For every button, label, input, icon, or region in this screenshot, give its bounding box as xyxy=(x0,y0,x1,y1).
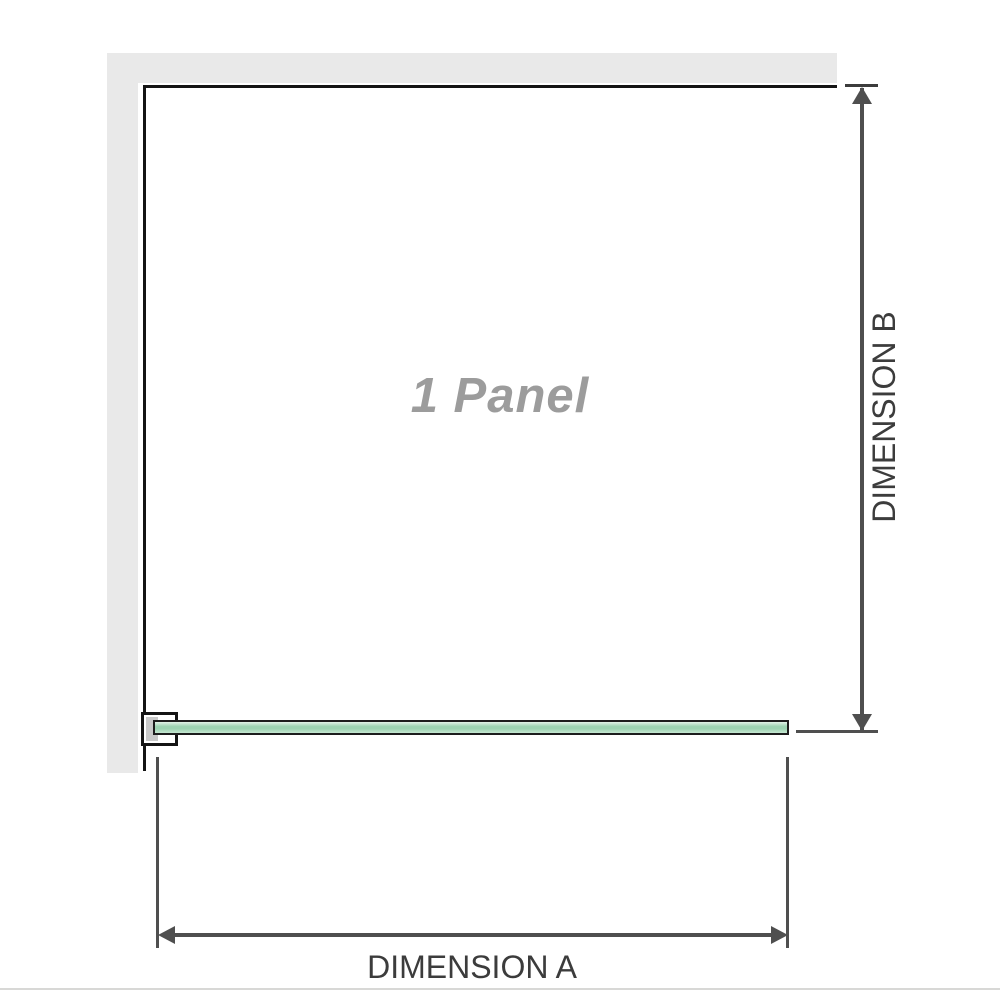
glass-panel xyxy=(153,720,789,735)
dimension-a-label: DIMENSION A xyxy=(172,948,772,986)
shower-panel-diagram: 1 Panel DIMENSION B DIMENSION A xyxy=(0,0,1000,1000)
arrow-left-icon xyxy=(158,926,175,944)
dimension-b-label: DIMENSION B xyxy=(866,217,902,617)
panel-count-label: 1 Panel xyxy=(300,365,700,427)
arrow-down-icon xyxy=(852,714,872,731)
arrow-up-icon xyxy=(852,87,872,104)
dimension-a-left-extension xyxy=(156,757,159,948)
wall-top xyxy=(107,53,837,83)
dimension-a-right-extension xyxy=(786,757,789,948)
dimension-a-line xyxy=(162,933,784,937)
dimension-b-line xyxy=(860,88,864,731)
panel-left-border xyxy=(143,85,146,771)
wall-left xyxy=(107,53,138,773)
page-divider xyxy=(0,988,1000,990)
panel-top-border xyxy=(143,85,837,88)
arrow-right-icon xyxy=(771,926,788,944)
